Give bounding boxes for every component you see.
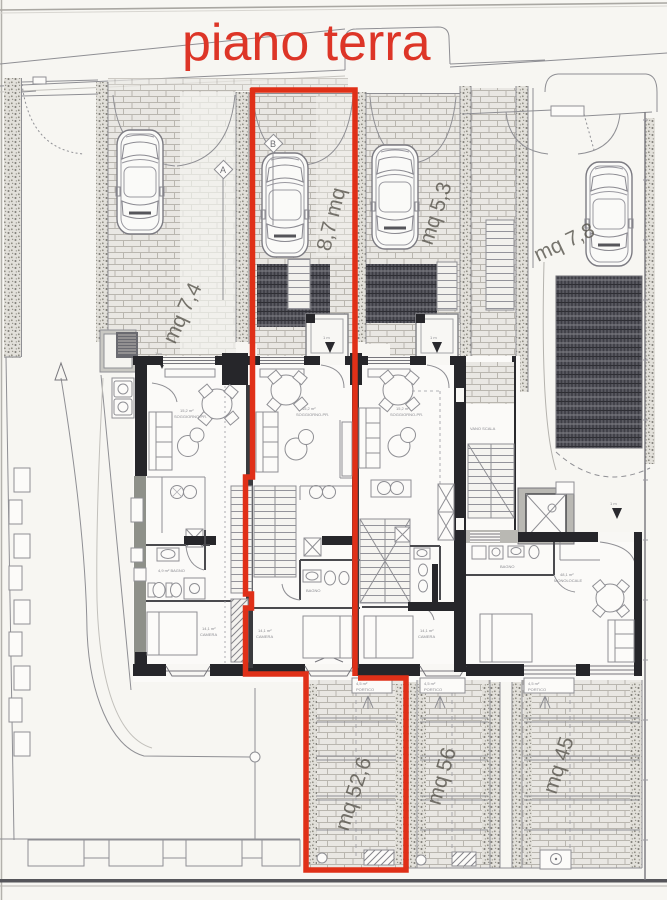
svg-text:PORTICO: PORTICO (356, 687, 374, 692)
svg-text:4,5 m²: 4,5 m² (424, 681, 436, 686)
svg-text:4,5 m²: 4,5 m² (356, 681, 368, 686)
svg-text:CAMERA: CAMERA (418, 634, 435, 639)
svg-text:15,2 m²: 15,2 m² (302, 406, 316, 411)
svg-text:SOGGIORNO-PR.: SOGGIORNO-PR. (296, 412, 329, 417)
svg-text:PORTICO: PORTICO (424, 687, 442, 692)
svg-text:B: B (270, 139, 276, 149)
svg-text:1 m: 1 m (610, 501, 617, 506)
svg-text:14,1 m²: 14,1 m² (258, 628, 272, 633)
svg-text:SOGGIORNO-PR.: SOGGIORNO-PR. (390, 412, 423, 417)
svg-text:SOGGIORNO-PR.: SOGGIORNO-PR. (174, 414, 207, 419)
svg-text:4,9 m² BAGNO: 4,9 m² BAGNO (158, 568, 185, 573)
svg-text:CAMERA: CAMERA (256, 634, 273, 639)
svg-text:piano terra: piano terra (182, 14, 431, 72)
svg-text:BAGNO: BAGNO (306, 588, 320, 593)
svg-text:CAMERA: CAMERA (200, 632, 217, 637)
svg-text:1 m: 1 m (155, 351, 162, 356)
svg-text:15,2 m²: 15,2 m² (180, 408, 194, 413)
svg-text:48,1 m²: 48,1 m² (560, 572, 574, 577)
svg-text:4,5 m²: 4,5 m² (528, 681, 540, 686)
svg-text:PORTICO: PORTICO (528, 687, 546, 692)
svg-text:VANO SCALA: VANO SCALA (470, 426, 496, 431)
svg-text:1 m: 1 m (323, 335, 330, 340)
svg-text:A: A (220, 165, 226, 175)
svg-text:1 m: 1 m (430, 335, 437, 340)
svg-text:14,1 m²: 14,1 m² (420, 628, 434, 633)
svg-text:14,1 m²: 14,1 m² (202, 626, 216, 631)
svg-text:BAGNO: BAGNO (500, 564, 514, 569)
svg-text:15,2 m²: 15,2 m² (396, 406, 410, 411)
